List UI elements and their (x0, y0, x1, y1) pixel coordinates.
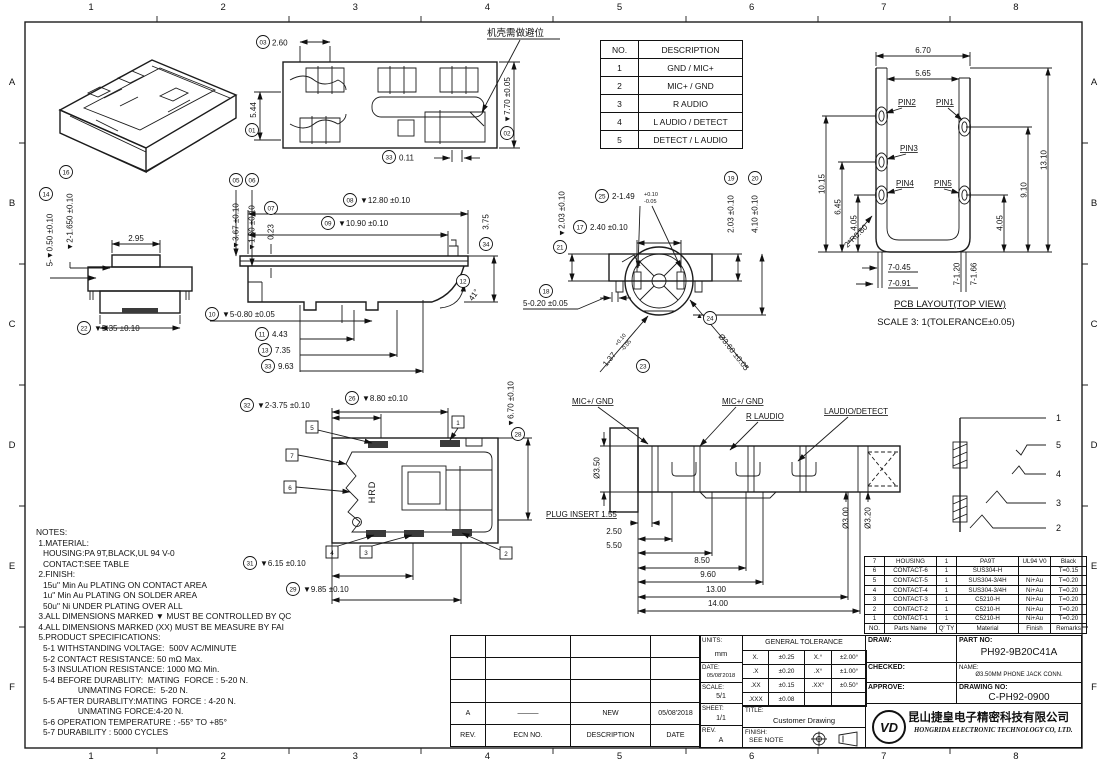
table-cell (486, 680, 571, 702)
table-cell: ±0.50° (832, 679, 867, 693)
table-cell: GND / MIC+ (639, 59, 743, 77)
dim-label: 9.63 (278, 362, 294, 371)
table-cell: 7 (865, 557, 885, 567)
svg-text:19: 19 (727, 175, 735, 182)
table-cell: CONTACT-2 (885, 604, 937, 614)
part-no-cell: PART NO: PH92-9B20C41A (956, 635, 1082, 663)
table-cell: MIC+ / GND (639, 77, 743, 95)
table-cell: 3 (601, 95, 639, 113)
table-cell: T=0.20 (1051, 595, 1087, 605)
svg-text:28: 28 (514, 431, 522, 438)
svg-text:33: 33 (385, 154, 393, 161)
table-cell: T=0.20 (1051, 576, 1087, 586)
svg-text:22: 22 (80, 325, 88, 332)
svg-text:11: 11 (259, 331, 266, 338)
table-cell: REV. (451, 724, 486, 746)
pin-label: PIN2 (898, 98, 916, 107)
svg-text:17: 17 (576, 224, 584, 231)
table-cell: Finish (1019, 624, 1051, 634)
table-cell (486, 636, 571, 658)
svg-text:16: 16 (62, 169, 70, 176)
svg-text:34: 34 (482, 241, 490, 248)
table-cell: 1 (937, 557, 957, 567)
table-cell: C5210-H (957, 604, 1019, 614)
table-cell: DATE (651, 724, 701, 746)
svg-text:08: 08 (346, 197, 354, 204)
callout-5: 5 (306, 421, 372, 443)
side-view: ▼3.67 ±0.10 ▼1.80 ±0.10 0.23 ▼12.80 ±0.1… (206, 174, 499, 374)
table-cell: NEW (571, 702, 651, 724)
table-cell: 1 (937, 585, 957, 595)
callout-3: 3 (360, 535, 412, 558)
table-cell: T=0.20 (1051, 614, 1087, 624)
balloon-08: 08 (344, 194, 357, 207)
balloon-20: 20 (749, 172, 762, 185)
table-cell: ——— (486, 702, 571, 724)
table-cell: NO. (601, 41, 639, 59)
svg-text:24: 24 (706, 315, 714, 322)
table-cell: C5210-H (957, 614, 1019, 624)
table-cell: Remarks (1051, 624, 1087, 634)
svg-text:03: 03 (259, 39, 267, 46)
dim-label: ▼10.90 ±0.10 (338, 219, 389, 228)
table-cell (651, 636, 701, 658)
table-cell: 1 (865, 614, 885, 624)
table-cell (486, 658, 571, 680)
dim-label: Ø3.20 (864, 507, 873, 529)
dim-label: 41° (467, 287, 481, 302)
balloon-14: 14 (40, 188, 53, 201)
table-cell: Ni+Au (1019, 614, 1051, 624)
table-cell: DETECT / L AUDIO (639, 131, 743, 149)
dim-label: 2.50 (606, 527, 622, 536)
svg-text:21: 21 (556, 244, 564, 251)
balloon-11: 11 (256, 328, 269, 341)
table-cell (571, 658, 651, 680)
units-cell: UNITS: mm (699, 635, 743, 663)
table-cell: Ni+Au (1019, 595, 1051, 605)
dim-label: 13.10 (1040, 149, 1049, 170)
svg-text:2: 2 (504, 551, 508, 558)
table-cell: L AUDIO / DETECT (639, 113, 743, 131)
company-cell: VD 昆山捷皇电子精密科技有限公司 HONGRIDA ELECTRONIC TE… (865, 703, 1082, 748)
callout-2: 2 (462, 533, 512, 559)
svg-text:02: 02 (503, 130, 511, 137)
svg-text:3: 3 (364, 550, 368, 557)
dim-label: 2.40 ±0.10 (590, 223, 628, 232)
balloon-16: 16 (60, 166, 73, 179)
dim-label: 4.10 ±0.10 (751, 195, 760, 233)
dim-label: 8.50 (694, 556, 710, 565)
dim-label: 9.10 (1020, 182, 1029, 198)
balloon-13: 13 (259, 344, 272, 357)
table-cell: CONTACT-1 (885, 614, 937, 624)
balloon-17: 17 (574, 221, 587, 234)
dim-label: ▼5.35 ±0.10 (94, 324, 140, 333)
dim-label: 7-1.20 (953, 262, 962, 285)
pcb-layout-view: PIN2 PIN1 PIN3 PIN4 PIN5 6.70 5.65 10.15… (818, 46, 1053, 328)
dim-label: 10.15 (818, 173, 827, 194)
balloon-33a: 33 (383, 151, 396, 164)
balloon-03: 03 (257, 36, 270, 49)
dim-label: 2-1.49 (612, 192, 635, 201)
company-name-cn: 昆山捷皇电子精密科技有限公司 (908, 709, 1069, 725)
dim-label: PLUG INSERT 1.55 (546, 510, 617, 519)
housing-marking: HRD (367, 481, 377, 504)
balloon-21: 21 (554, 241, 567, 254)
svg-text:26: 26 (348, 395, 356, 402)
dim-label: 7-1.66 (970, 262, 979, 285)
callout-7: 7 (286, 449, 346, 464)
balloon-10: 10 (206, 308, 219, 321)
pin-description-table: NO.DESCRIPTION1GND / MIC+2MIC+ / GND3R A… (600, 40, 743, 149)
table-cell: X. (743, 651, 769, 665)
svg-text:10: 10 (208, 311, 216, 318)
pad-pin2 (876, 107, 888, 125)
table-cell: Ni+Au (1019, 576, 1051, 586)
table-cell: CONTACT-6 (885, 566, 937, 576)
callout-6: 6 (284, 481, 350, 493)
svg-text:5: 5 (310, 425, 314, 432)
table-cell: NO. (865, 624, 885, 634)
svg-text:05: 05 (232, 177, 240, 184)
table-cell: ±0.20 (769, 665, 805, 679)
table-cell: 2 (601, 77, 639, 95)
pin-function-label: R LAUDIO (746, 412, 784, 421)
balloon-32: 32 (241, 399, 254, 412)
schematic-pin: 4 (1056, 469, 1061, 479)
dim-label: ▼2-1.650 ±0.10 (66, 193, 75, 251)
balloon-05: 05 (230, 174, 243, 187)
dim-label: 5-▼0.50 ±0.10 (46, 213, 55, 266)
table-cell: UL94 V0 (1019, 557, 1051, 567)
table-cell: 2 (865, 604, 885, 614)
svg-text:32: 32 (243, 402, 251, 409)
balloon-33b: 33 (262, 360, 275, 373)
table-cell: Ni+Au (1019, 604, 1051, 614)
dim-label: 4.05 (996, 215, 1005, 231)
table-cell: 1 (937, 614, 957, 624)
dim-label: ▼7.70 ±0.05 (503, 77, 512, 123)
table-cell: Material (957, 624, 1019, 634)
drawing-no-cell: DRAWING NO: C-PH92-0900 (956, 682, 1082, 704)
dim-label: ▼2.03 ±0.10 (558, 191, 567, 237)
draw-cell: DRAW: (865, 635, 957, 663)
dim-label: ▼6.70 ±0.10 (507, 381, 516, 427)
table-cell: 1 (937, 566, 957, 576)
table-cell: SUS304-3/4H (957, 576, 1019, 586)
checked-cell: CHECKED: (865, 662, 957, 683)
company-name-en: HONGRIDA ELECTRONIC TECHNOLOGY CO, LTD. (914, 727, 1073, 734)
table-cell: SUS304-H (957, 566, 1019, 576)
svg-text:18: 18 (542, 288, 550, 295)
dim-label: 6.45 (834, 199, 843, 215)
dim-label: ▼2-3.75 ±0.10 (257, 401, 310, 410)
balloon-07: 07 (265, 202, 278, 215)
svg-text:06: 06 (248, 177, 256, 184)
dim-label: 3.75 (482, 214, 491, 230)
name-cell: NAME: Ø3.50MM PHONE JACK CONN. (956, 662, 1082, 683)
svg-text:25: 25 (598, 193, 606, 200)
table-cell: 5 (601, 131, 639, 149)
dim-label: 4.43 (272, 330, 288, 339)
dim-label: ▼12.80 ±0.10 (360, 196, 411, 205)
svg-text:6: 6 (288, 485, 292, 492)
table-cell: CONTACT-4 (885, 585, 937, 595)
table-cell: R AUDIO (639, 95, 743, 113)
drawing-sheet: 12345678 12345678 ABCDEF ABCDEF (0, 0, 1105, 769)
svg-text:Ø3.60 ±0.05: Ø3.60 ±0.05 (717, 332, 752, 373)
pin-label: PIN5 (934, 179, 952, 188)
table-cell: .XX (743, 679, 769, 693)
table-cell (651, 658, 701, 680)
table-cell: 1 (937, 576, 957, 586)
plug-section-view: MIC+/ GND MIC+/ GND R LAUDIO LAUDIO/DETE… (546, 397, 900, 614)
dim-label: 7-0.91 (888, 279, 911, 288)
dim-label: ▼8.80 ±0.10 (362, 394, 408, 403)
table-cell: CONTACT-3 (885, 595, 937, 605)
table-cell: T=0.20 (1051, 585, 1087, 595)
table-cell (451, 658, 486, 680)
table-cell: X.° (805, 651, 832, 665)
table-cell: Parts Name (885, 624, 937, 634)
table-cell: PA9T (957, 557, 1019, 567)
dim-label: 9.60 (700, 570, 716, 579)
dim-label: 14.00 (708, 599, 729, 608)
balloon-34: 34 (480, 238, 493, 251)
dim-label-group-24: Ø3.60 ±0.05 (717, 332, 752, 373)
table-cell (571, 680, 651, 702)
dim-label: ▼5-0.80 ±0.05 (222, 310, 275, 319)
pad-pin3 (876, 153, 888, 171)
svg-text:09: 09 (324, 220, 332, 227)
tolerance-table: X.±0.25X.°±2.00°.X±0.20.X°±1.00°.XX±0.15… (742, 650, 867, 707)
svg-text:07: 07 (267, 205, 275, 212)
scale-cell: SCALE: 5/1 (699, 682, 743, 704)
schematic-pin: 5 (1056, 440, 1061, 450)
dim-label: 5-0.20 ±0.05 (523, 299, 568, 308)
balloon-02: 02 (501, 127, 514, 140)
balloon-28: 28 (512, 428, 525, 441)
schematic-pin: 3 (1056, 498, 1061, 508)
table-cell: .X° (805, 665, 832, 679)
isometric-view (60, 60, 236, 172)
pin-function-label: MIC+/ GND (722, 397, 764, 406)
svg-text:14: 14 (42, 191, 50, 198)
balloon-25: 25 (596, 190, 609, 203)
dim-label: ▼9.85 ±0.10 (303, 585, 349, 594)
table-cell: 4 (865, 585, 885, 595)
table-cell (451, 680, 486, 702)
table-cell: Black (1051, 557, 1087, 567)
balloon-23: 23 (637, 360, 650, 373)
table-cell (1019, 566, 1051, 576)
company-logo: VD (872, 710, 906, 744)
dim-tol-sub: -0.05 (644, 199, 657, 205)
table-cell: ±2.00° (832, 651, 867, 665)
sheet-cell: SHEET: 1/1 (699, 703, 743, 726)
dim-label: Ø3.50 (593, 457, 602, 479)
table-cell: T=0.20 (1051, 604, 1087, 614)
table-cell: C5210-H (957, 595, 1019, 605)
bom-table: 7HOUSING1PA9TUL94 V0Black6CONTACT-61SUS3… (864, 556, 1087, 634)
table-cell: 1 (601, 59, 639, 77)
svg-text:20: 20 (751, 175, 759, 182)
table-cell: DESCRIPTION (571, 724, 651, 746)
dim-label: 5.65 (915, 69, 931, 78)
svg-text:23: 23 (639, 363, 647, 370)
table-cell: DESCRIPTION (639, 41, 743, 59)
svg-text:13: 13 (261, 347, 269, 354)
pin-label: PIN3 (900, 144, 918, 153)
table-cell: 4 (601, 113, 639, 131)
front-view: 2-1.49 +0.10 -0.05 2.40 ±0.10 ▼2.03 ±0.1… (523, 172, 766, 373)
svg-text:33: 33 (264, 363, 272, 370)
pin-label: PIN4 (896, 179, 914, 188)
dim-label: Ø3.00 (842, 507, 851, 529)
projection-symbol-icon (809, 731, 863, 747)
table-cell: CONTACT-5 (885, 576, 937, 586)
pin-function-label: LAUDIO/DETECT (824, 407, 888, 416)
table-cell: ±0.15 (769, 679, 805, 693)
pcb-layout-title: PCB LAYOUT(TOP VIEW) (894, 299, 1006, 310)
table-cell: 05/08'2018 (651, 702, 701, 724)
balloon-22: 22 (78, 322, 91, 335)
revision-table: A———NEW05/08'2018REV.ECN NO.DESCRIPTIOND… (450, 635, 701, 747)
dim-label: 7.35 (275, 346, 291, 355)
table-cell: .X (743, 665, 769, 679)
balloon-24: 24 (704, 312, 717, 325)
dim-label: 2.03 ±0.10 (727, 195, 736, 233)
table-cell: HOUSING (885, 557, 937, 567)
balloon-19: 19 (725, 172, 738, 185)
table-cell: 5 (865, 576, 885, 586)
table-cell: ECN NO. (486, 724, 571, 746)
table-cell (651, 680, 701, 702)
table-cell: ±0.25 (769, 651, 805, 665)
dim-label: 0.11 (399, 154, 415, 163)
pcb-layout-scale: SCALE 3: 1(TOLERANCE±0.05) (877, 317, 1015, 328)
table-cell: A (451, 702, 486, 724)
balloon-12: 12 (457, 275, 470, 288)
notes-block: NOTES: 1.MATERIAL: HOUSING:PA 9T,BLACK,U… (36, 527, 291, 738)
table-cell: Q' TY (937, 624, 957, 634)
dim-label: 7-0.45 (888, 263, 911, 272)
dim-tol-sup: +0.10 (644, 192, 658, 198)
dim-label: 2.95 (128, 234, 144, 243)
table-cell: 3 (865, 595, 885, 605)
tolerance-header: GENERAL TOLERANCE (742, 635, 866, 651)
table-cell: 1 (937, 595, 957, 605)
table-cell: 6 (865, 566, 885, 576)
callout-1: 1 (450, 416, 464, 440)
contact-schematic: 1 5 4 3 2 (953, 413, 1061, 533)
dim-label: ▼3.67 ±0.10 (232, 203, 241, 249)
finish-cell: FINISH: SEE NOTE (742, 727, 866, 748)
dim-label: 5.50 (606, 541, 622, 550)
rev-cell: REV. A (699, 725, 743, 748)
pin-label: PIN1 (936, 98, 954, 107)
balloon-09: 09 (322, 217, 335, 230)
schematic-pin: 1 (1056, 413, 1061, 423)
table-cell: .XX° (805, 679, 832, 693)
svg-text:7: 7 (290, 453, 294, 460)
svg-text:1.37: 1.37 (601, 350, 618, 368)
dim-label: 5.44 (249, 102, 258, 118)
svg-text:12: 12 (459, 278, 467, 285)
date-cell: DATE: 05/08'2018 (699, 662, 743, 683)
top-view: 2.60 5.44 ▼7.70 ±0.05 0.11 机壳需做避位 03 01 … (246, 27, 561, 164)
balloon-18: 18 (540, 285, 553, 298)
dim-label: 0.23 (267, 224, 276, 240)
table-cell: SUS304-3/4H (957, 585, 1019, 595)
dim-label: 6.70 (915, 46, 931, 55)
balloon-06: 06 (246, 174, 259, 187)
schematic-pin: 2 (1056, 523, 1061, 533)
approve-cell: APPROVE: (865, 682, 957, 704)
housing-clearance-note: 机壳需做避位 (487, 27, 545, 39)
table-cell (571, 636, 651, 658)
svg-text:1: 1 (456, 420, 460, 427)
table-cell: 1 (937, 604, 957, 614)
table-cell: T=0.15 (1051, 566, 1087, 576)
pad-pin4 (876, 186, 888, 204)
table-cell: ±1.00° (832, 665, 867, 679)
balloon-01: 01 (246, 124, 259, 137)
dim-label: 13.00 (706, 585, 727, 594)
end-view: 2.95 ▼5.35 ±0.10 5-▼0.50 ±0.10 ▼2-1.650 … (40, 166, 193, 335)
dim-label: ▼1.80 ±0.10 (248, 205, 257, 251)
pin-function-label: MIC+/ GND (572, 397, 614, 406)
dim-label: 2.60 (272, 39, 288, 48)
table-cell (451, 636, 486, 658)
title-cell: TITLE: Customer Drawing (742, 705, 866, 728)
title-block: A———NEW05/08'2018REV.ECN NO.DESCRIPTIOND… (450, 635, 1082, 748)
svg-text:01: 01 (248, 127, 256, 134)
table-cell: Ni+Au (1019, 585, 1051, 595)
balloon-26: 26 (346, 392, 359, 405)
